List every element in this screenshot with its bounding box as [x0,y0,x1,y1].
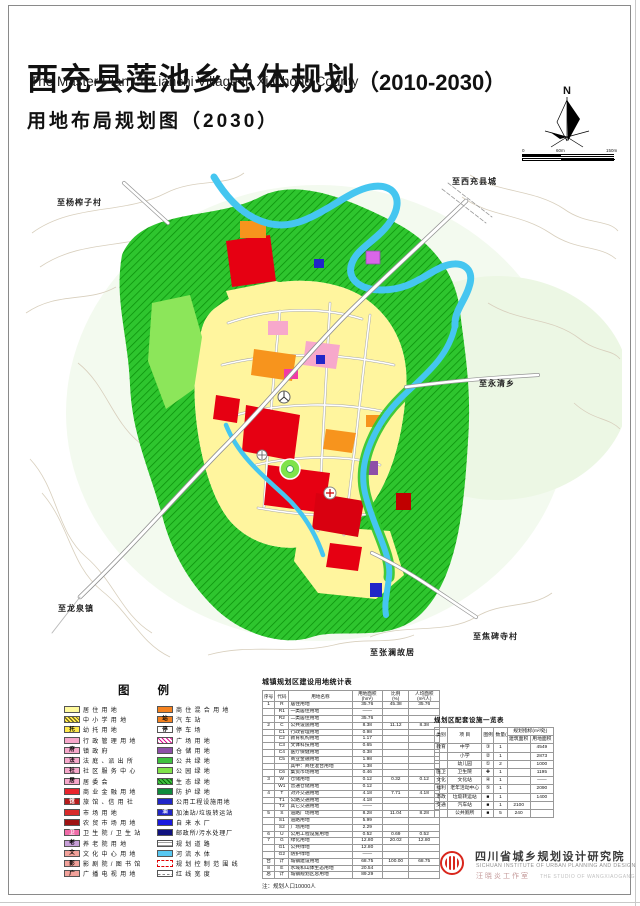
land-use-header-cell: 用地名称 [289,691,352,702]
land-use-row: S2广场用地2.29 [263,824,440,831]
facility-cell: 垃圾转运站 [448,793,482,801]
land-use-cell: 其它交通用地 [289,804,352,811]
legend-item: 公用工程设施用地 [157,797,260,807]
facility-cell [435,760,448,768]
legend-label: 旅 馆 、信 用 社 [83,797,134,806]
legend-item: 公 共 绿 地 [157,755,260,765]
land-use-cell: C4 [275,749,289,756]
land-use-header-cell: 人均面积 (m²/人) [409,691,440,702]
legend-swatch: 府 [64,747,80,754]
land-use-cell: 城镇建设用地 [289,858,352,865]
legend-swatch-glyph: 卫 [65,830,79,837]
land-use-cell: 68.75 [409,858,440,865]
land-use-cell: 0.52 [409,831,440,838]
facility-cell: ③ [482,744,494,752]
facility-cell: 市政 [435,793,448,801]
facility-cell: 1400 [530,793,553,801]
land-use-cell [409,817,440,824]
land-use-cell [263,749,275,756]
land-use-row: C3文体科技用地0.65 [263,743,440,750]
fc-h-item: 项 目 [448,728,482,744]
land-use-cell [263,716,275,723]
land-use-cell: R1 [275,709,289,716]
land-use-cell: 0.46 [352,770,383,777]
facility-cell [507,777,530,785]
land-use-cell [263,824,275,831]
land-use-cell: 1.17 [352,736,383,743]
legend-label: 农 贸 市 场 用 地 [83,818,136,827]
land-use-cell: 公共绿地 [289,845,352,852]
land-use-row: C4医疗保健用地0.38 [263,749,440,756]
legend: 图例 居 住 用 地中 小 学 用 地托幼 托 用 地行 政 管 理 用 地府镇… [64,682,260,882]
legend-item: 居居 委 会 [64,776,157,786]
facility-cell: 2090 [530,785,553,793]
land-use-cell [263,729,275,736]
land-use-cell: 0.12 [352,783,383,790]
land-use-cell: 公共设施用地 [289,722,352,729]
land-use-row: 5S道路广场用地8.2811.048.28 [263,811,440,818]
land-use-cell [383,865,409,872]
land-use-cell: 35.76 [352,716,383,723]
legend-swatch [157,860,173,867]
land-use-cell: 绿化用地 [289,838,352,845]
land-use-cell: 广场用地 [289,824,352,831]
legend-label: 商 业 金 融 用 地 [83,787,136,796]
legend-swatch: 托 [64,726,80,733]
facility-cell [435,752,448,760]
land-use-cell [383,851,409,858]
land-use-cell: 0.65 [352,743,383,750]
land-use-cell: 合 [263,858,275,865]
land-use-cell: 6 [263,831,275,838]
legend-item: 仓 储 用 地 [157,745,260,755]
land-use-row: S1道路用地5.99 [263,817,440,824]
legend-item: 行 政 管 理 用 地 [64,735,157,745]
facility-cell: 1 [494,785,507,793]
land-use-cell: 教育机构用地 [289,736,352,743]
land-use-cell: C1 [275,729,289,736]
map-road-label: 至张澜故居 [370,647,415,658]
land-use-cell: 商业金融用地 [289,756,352,763]
land-use-cell: E [275,865,289,872]
land-use-cell: C2 [275,736,289,743]
land-use-table-title: 城镇规划区建设用地统计表 [262,677,442,687]
map-road-label: 至西充县城 [452,176,497,187]
land-use-cell: 4.18 [352,790,383,797]
publisher-name-en: SICHUAN INSTITUTE OF URBAN PLANNING AND … [476,863,636,869]
land-use-row: W1普通仓储用地0.12 [263,783,440,790]
legend-swatch: 卫 [64,829,80,836]
legend-label: 镇 政 府 [83,746,108,755]
land-use-cell: 医疗保健用地 [289,749,352,756]
facility-cell: ⑤ [482,785,494,793]
facility-cell: 医卫 [435,769,448,777]
land-use-cell [383,824,409,831]
land-use-cell [383,804,409,811]
land-use-cell: W [275,777,289,784]
legend-swatch: 广 [64,870,80,877]
legend-item: 邮政所/污水处理厂 [157,828,260,838]
facility-cell: 1 [494,744,507,752]
land-use-cell: 普通仓储用地 [289,783,352,790]
facility-row: 市政垃圾转运站■11400 [435,793,554,801]
land-use-cell: 城镇规划区总用地 [289,872,352,879]
land-use-cell [383,872,409,879]
facility-cell [435,810,448,818]
facility-row: 福利老年活动中心⑤12090 [435,785,554,793]
land-use-cell: 89.29 [352,872,383,879]
legend-item: 法法 庭 、派 出 所 [64,755,157,765]
facility-cell: 中学 [448,744,482,752]
legend-item: 规 划 道 路 [157,838,260,848]
land-use-cell: 文体科技用地 [289,743,352,750]
land-use-row: 1R居住用地35.7645.3835.76 [263,702,440,709]
land-use-cell [263,817,275,824]
land-use-cell: 12.80 [409,838,440,845]
legend-label: 停 车 场 [176,725,201,734]
legend-item: 影影 剧 院 / 图 书 馆 [64,858,157,868]
legend-item: 文文 化 中 心 用 地 [64,848,157,858]
land-use-cell: U [275,831,289,838]
fc-h-yd: 用地面积 [530,736,553,744]
land-use-cell: 1.38 [352,763,383,770]
page-title-en: The Master Plan Of Lianchi Village In Xi… [30,74,358,89]
legend-item: 居 住 用 地 [64,704,157,714]
scale-tick-150: 150m [606,148,617,153]
land-use-cell [383,817,409,824]
land-use-cell: 12.80 [352,845,383,852]
legend-label: 邮政所/污水处理厂 [176,828,233,837]
land-use-cell: 公路交通用地 [289,797,352,804]
legend-item: 卫卫 生 院 / 卫 生 站 [64,828,157,838]
legend-label: 广 播 电 视 用 地 [83,869,136,878]
land-use-cell: 68.75 [352,858,383,865]
legend-swatch [157,819,173,826]
facility-row: 文化文化站④1—— [435,777,554,785]
land-use-cell: G1 [275,845,289,852]
facility-cell: 240 [507,810,530,818]
legend-swatch: 文 [64,850,80,857]
legend-swatch [157,798,173,805]
land-use-cell: C6 [275,770,289,777]
land-use-row: 2C公共设施用地8.3811.128.38 [263,722,440,729]
fc-h-cat: 类别 [435,728,448,744]
facility-cell: 5 [494,810,507,818]
land-use-row: 3W仓储用地0.120.320.12 [263,777,440,784]
land-use-cell: 其中：商住混合用地 [289,763,352,770]
legend-swatch-glyph: 文 [65,850,79,857]
scale-tick-60: 60m [556,148,565,153]
studio-line: 汪晓炎工作室THE STUDIO OF WANGXIAOGANG [476,871,635,881]
facility-row: 交通汽车站■12100 [435,801,554,809]
legend-swatch-glyph: 社 [65,768,79,775]
facility-cell: 公共厕所 [448,810,482,818]
facility-cell: 1 [494,793,507,801]
land-use-cell: 35.76 [352,702,383,709]
land-use-cell: 4.18 [352,797,383,804]
land-use-cell [383,743,409,750]
land-use-cell: 0.69 [383,831,409,838]
map-road-label: 至永清乡 [479,378,515,389]
legend-item: 防 护 绿 地 [157,786,260,796]
legend-swatch: 老 [64,840,80,847]
legend-item: 油加油站/垃圾转运站 [157,807,260,817]
land-use-cell: 防护绿地 [289,851,352,858]
facility-cell: ■ [482,793,494,801]
land-use-row: 7G绿化用地12.8020.0212.80 [263,838,440,845]
land-use-header-cell: 用地面积 (hm²) [352,691,383,702]
legend-item: 馆旅 馆 、信 用 社 [64,797,157,807]
legend-item: 广广 播 电 视 用 地 [64,869,157,879]
land-use-cell: 集贸市场用地 [289,770,352,777]
legend-label: 法 庭 、派 出 所 [83,756,134,765]
legend-title: 图例 [118,682,197,698]
legend-swatch-glyph: 法 [65,758,79,765]
legend-label: 市 场 用 地 [83,808,118,817]
land-use-header-cell: 代码 [275,691,289,702]
legend-swatch: 居 [64,778,80,785]
facility-row: 公共厕所■5240 [435,810,554,818]
facility-cell: 交通 [435,801,448,809]
land-use-cell: 行政管理用地 [289,729,352,736]
land-use-cell: 对外交通用地 [289,790,352,797]
legend-label: 红 线 宽 度 [176,869,211,878]
legend-label: 养 老 院 用 地 [83,839,127,848]
legend-item: 红 线 宽 度 [157,869,260,879]
legend-swatch: 站 [157,716,173,723]
land-use-row: G2防护绿地—— [263,851,440,858]
legend-swatch [157,870,173,877]
north-arrow: N [540,86,594,150]
land-use-table-note: 注：规划人口10000人 [262,882,442,890]
land-use-cell [409,865,440,872]
legend-item: 停停 车 场 [157,725,260,735]
legend-swatch: 停 [157,726,173,733]
land-use-cell: 8.28 [352,811,383,818]
land-use-cell [263,804,275,811]
facility-cell: 1 [494,769,507,777]
facility-cell [507,785,530,793]
facility-cell: 幼儿园 [448,760,482,768]
institute-logo-mark [445,856,459,870]
land-use-row: R2二类居住用地35.76 [263,716,440,723]
land-use-cell: —— [352,851,383,858]
legend-item: 商 住 混 合 用 地 [157,704,260,714]
land-use-cell: 35.76 [409,702,440,709]
land-use-cell: 0.38 [352,749,383,756]
map-road-label: 至龙泉镇 [58,603,94,614]
land-use-cell [275,763,289,770]
north-arrow-icon [540,97,594,149]
legend-swatch-glyph: 油 [158,809,172,816]
legend-swatch [64,809,80,816]
land-use-cell: 12.80 [352,838,383,845]
planning-map [18,163,622,671]
legend-label: 加油站/垃圾转运站 [176,808,233,817]
land-use-cell: G [275,838,289,845]
facility-cell: 1 [494,801,507,809]
facility-cell [530,810,553,818]
land-use-cell: 3 [263,777,275,784]
land-use-cell: 仓储用地 [289,777,352,784]
legend-item: 托幼 托 用 地 [64,725,157,735]
page-title-years: （2010-2030） [357,70,506,95]
legend-swatch [157,706,173,713]
legend-label: 汽 车 站 [176,715,201,724]
land-use-cell: 0.12 [352,777,383,784]
map-road-label: 至焦碑寺村 [473,631,518,642]
land-use-table-section: 城镇规划区建设用地统计表 序号代码用地名称用地面积 (hm²)比例 (%)人均面… [262,677,442,890]
legend-item: 农 贸 市 场 用 地 [64,817,157,827]
facilities-table: 类别 项 目 图例 数量(处) 规划指标(m²/处) 建筑面积 用地面积 教育中… [434,727,554,818]
land-use-row: 6U公用工程设施用地0.520.690.52 [263,831,440,838]
facility-cell [507,793,530,801]
land-use-cell [383,845,409,852]
legend-swatch [157,788,173,795]
facility-cell [507,760,530,768]
facility-cell [530,801,553,809]
land-use-cell: R2 [275,716,289,723]
land-use-cell: 5.99 [352,817,383,824]
facility-cell: 福利 [435,785,448,793]
map-road-label: 至杨榨子村 [57,197,102,208]
land-use-cell: S1 [275,817,289,824]
facility-cell [507,744,530,752]
land-use-row: C6集贸市场用地0.46 [263,770,440,777]
legend-swatch [157,767,173,774]
legend-label: 中 小 学 用 地 [83,715,127,724]
land-use-cell [409,872,440,879]
land-use-row: C1行政管理用地0.98 [263,729,440,736]
land-use-cell: 8.38 [352,722,383,729]
legend-swatch: 社 [64,767,80,774]
legend-swatch-glyph: 停 [158,727,172,734]
legend-swatch [157,850,173,857]
land-use-cell [263,845,275,852]
land-use-cell [409,845,440,852]
facility-cell: 教育 [435,744,448,752]
land-use-cell [383,709,409,716]
land-use-header-cell: 序号 [263,691,275,702]
legend-swatch [64,819,80,826]
land-use-cell: W1 [275,783,289,790]
legend-swatch [157,829,173,836]
legend-swatch-glyph: 府 [65,747,79,754]
legend-label: 社 区 服 务 中 心 [83,766,136,775]
land-use-cell: 0.52 [352,831,383,838]
land-use-row: G1公共绿地12.80 [263,845,440,852]
land-use-cell: T1 [275,797,289,804]
land-use-cell [383,756,409,763]
legend-label: 仓 储 用 地 [176,746,211,755]
land-use-row: 4T对外交通用地4.187.714.18 [263,790,440,797]
land-use-cell: 8 [263,865,275,872]
land-use-cell [409,824,440,831]
legend-item: 社社 区 服 务 中 心 [64,766,157,776]
land-use-cell: 居住用地 [289,702,352,709]
land-use-cell: 2.29 [352,824,383,831]
legend-label: 生 态 绿 地 [176,777,211,786]
land-use-cell [383,770,409,777]
land-use-cell: 1 [263,702,275,709]
facility-row: 教育中学③14549 [435,744,554,752]
land-use-cell [383,729,409,736]
facility-cell: 汽车站 [448,801,482,809]
land-use-cell: 道路用地 [289,817,352,824]
facility-row: 幼儿园①21000 [435,760,554,768]
facility-cell: 小学 [448,752,482,760]
legend-item: 自 来 水 厂 [157,817,260,827]
land-use-cell [383,736,409,743]
facility-cell: ① [482,760,494,768]
land-use-cell [263,756,275,763]
facility-cell: 4549 [530,744,553,752]
legend-item: 中 小 学 用 地 [64,714,157,724]
sheet-subtitle: 用地布局规划图（2030） [27,106,279,133]
facility-cell [507,752,530,760]
facility-cell: 1 [494,777,507,785]
land-use-cell [263,743,275,750]
legend-label: 卫 生 院 / 卫 生 站 [83,828,141,837]
scale-bar-bottom [522,158,614,161]
land-use-row: C2教育机构用地1.17 [263,736,440,743]
legend-label: 公用工程设施用地 [176,797,230,806]
legend-item: 广 场 用 地 [157,735,260,745]
legend-swatch [157,737,173,744]
land-use-cell: —— [352,709,383,716]
legend-swatch [64,706,80,713]
facility-cell: ② [482,752,494,760]
facility-cell: —— [530,777,553,785]
legend-item: 规 划 控 制 范 围 线 [157,858,260,868]
facility-cell: 2100 [507,801,530,809]
studio-name-en: THE STUDIO OF WANGXIAOGANG [540,874,635,880]
land-use-cell: 7.71 [383,790,409,797]
facility-cell: 1195 [530,769,553,777]
legend-label: 规 划 道 路 [176,839,211,848]
land-use-cell: —— [352,804,383,811]
land-use-cell [263,770,275,777]
legend-label: 河 流 水 体 [176,849,211,858]
land-use-row: 其中：商住混合用地1.38 [263,763,440,770]
legend-label: 行 政 管 理 用 地 [83,736,136,745]
land-use-cell: 二类居住用地 [289,716,352,723]
facility-cell: 1000 [530,760,553,768]
land-use-cell: C3 [275,743,289,750]
land-use-row: T2其它交通用地—— [263,804,440,811]
land-use-row: 合计城镇建设用地68.75100.0068.75 [263,858,440,865]
facility-cell: 文化站 [448,777,482,785]
legend-item: 站汽 车 站 [157,714,260,724]
legend-label: 广 场 用 地 [176,736,211,745]
land-use-cell: 公用工程设施用地 [289,831,352,838]
land-use-cell: 总 [263,872,275,879]
facility-cell: 老年活动中心 [448,785,482,793]
legend-item: 公 园 绿 地 [157,766,260,776]
facility-cell: 文化 [435,777,448,785]
land-use-row: R1一类居住用地—— [263,709,440,716]
land-use-row: T1公路交通用地4.18 [263,797,440,804]
land-use-cell [383,716,409,723]
legend-swatch [157,757,173,764]
legend-swatch-glyph: 广 [65,871,79,878]
legend-swatch [64,716,80,723]
land-use-cell: 2 [263,722,275,729]
legend-swatch [157,747,173,754]
legend-label: 公 园 绿 地 [176,766,211,775]
legend-swatch-glyph: 托 [65,727,79,734]
fc-h-qty: 数量(处) [494,728,507,744]
